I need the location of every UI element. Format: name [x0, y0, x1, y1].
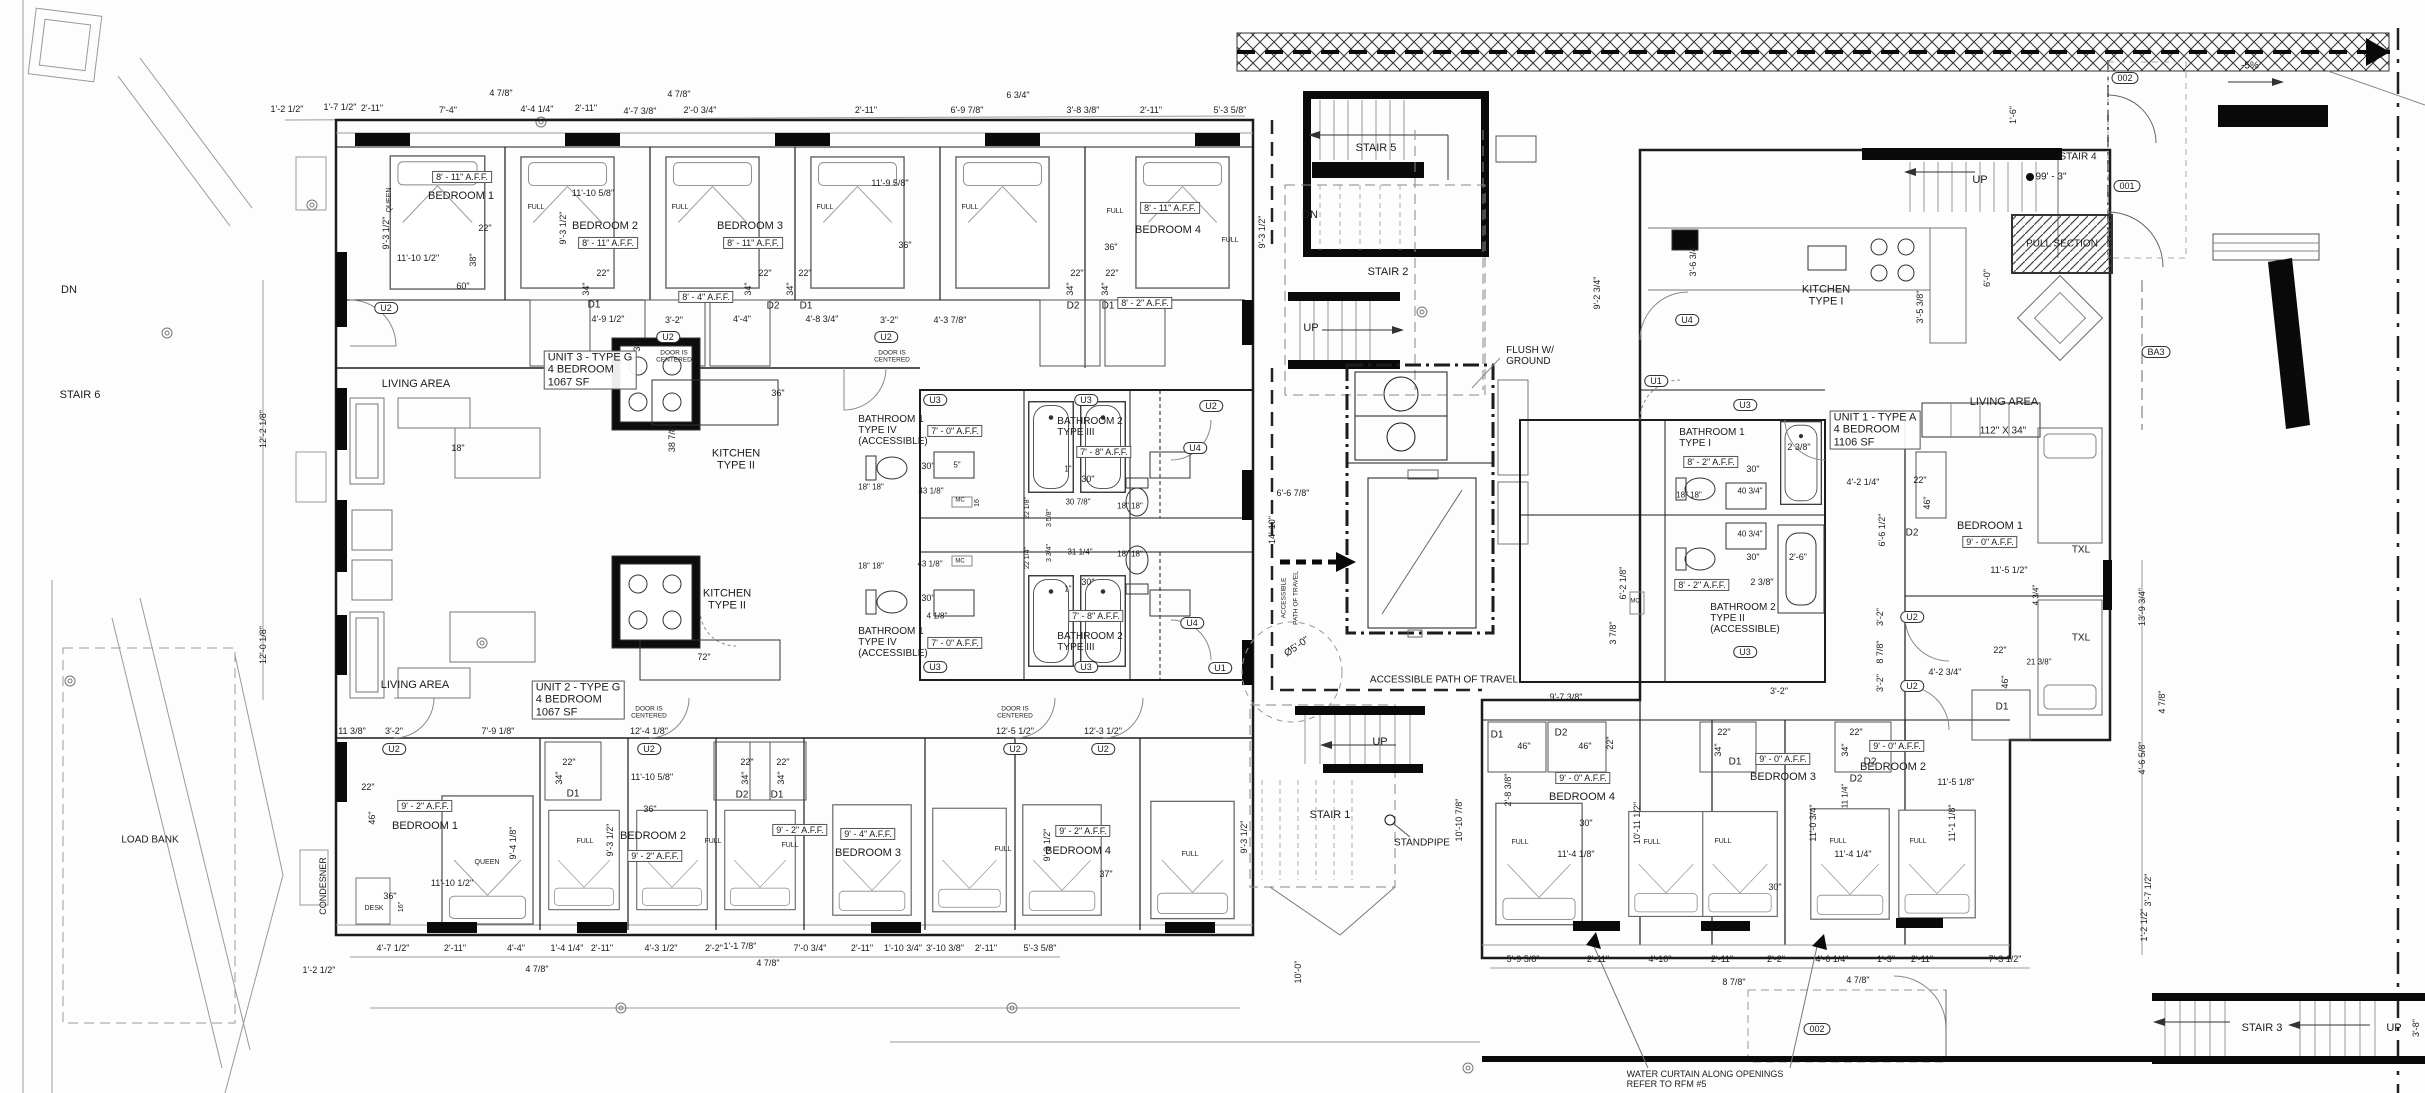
dim-label: 16" [398, 902, 406, 912]
bedroom-1-label: BEDROOM 1 [428, 190, 494, 202]
dim-label: 9'-2 3/4" [1592, 277, 1602, 310]
door-tag-u4: U4 [1183, 442, 1207, 454]
closet-tag: D1 [1102, 300, 1115, 311]
door-tag-u2: U2 [874, 331, 898, 343]
condenser-label: CONDESNER [318, 857, 328, 915]
aff-label: 9' - 0" A.F.F. [1555, 772, 1610, 784]
closet-tag: D2 [1906, 527, 1919, 538]
dim-label: 11'-1 1/8" [1947, 804, 1957, 841]
dim-label: 4'-6 1/4" [1816, 954, 1849, 964]
dim-label: 4 7/8" [2157, 690, 2167, 713]
dim-label: 22" [1913, 475, 1926, 485]
dim-label: 14'-10" [1267, 516, 1277, 544]
dim-label: 4'-8 3/4" [806, 314, 839, 324]
bed-size-label: FULL [576, 838, 593, 846]
stair4-up-label: UP [1972, 174, 1987, 186]
closet-tag: D2 [1067, 300, 1080, 311]
door-tag-u3: U3 [923, 661, 947, 673]
dim-label: 2'-11" [575, 103, 597, 113]
living-area-label: LIVING AREA [1970, 396, 2038, 408]
bedroom-2-label: BEDROOM 2 [620, 830, 686, 842]
fixture-tag: MC [1630, 599, 1639, 606]
door-note: DOOR IS CENTERED [874, 350, 910, 365]
dim-label: 3'-2" [385, 726, 403, 736]
bathroom-1-label: BATHROOM 1 TYPE IV (ACCESSIBLE) [858, 626, 927, 660]
floor-plan-canvas: DNSTAIR 612'-2 1/8"12'-0 1/8"LOAD BANKCO… [0, 0, 2425, 1093]
bed-size-label: FULL [781, 842, 798, 850]
dim-label: 11'-0 3/4" [1808, 804, 1818, 841]
dim-label: 18" 18" [858, 563, 884, 572]
bathroom-2-label: BATHROOM 2 TYPE III [1057, 416, 1122, 438]
bed-size-label: FULL [704, 838, 721, 846]
dim-label: 9'-3 1/2" [1239, 821, 1249, 854]
dim-label: 1'-3" [1877, 954, 1895, 964]
furniture-label: DESK [364, 905, 383, 913]
water-curtain-note: WATER CURTAIN ALONG OPENINGS REFER TO RF… [1627, 1069, 1784, 1089]
aff-label: 7' - 0" A.F.F. [927, 637, 982, 649]
dim-label: 1'-1 7/8" [724, 941, 757, 951]
dim-label: 30" [921, 461, 934, 471]
stair3-label: STAIR 3 [2242, 1022, 2283, 1034]
door-tag-u2: U2 [1900, 611, 1924, 623]
dim-label: 112" X 34" [1980, 425, 2026, 436]
door-tag-u2: U2 [656, 331, 680, 343]
dim-label: 22 1/8" [1024, 497, 1032, 519]
dim-label: 34" [581, 282, 591, 295]
dim-label: 30" [1081, 474, 1094, 484]
dim-label: 43 1/8" [918, 488, 943, 497]
dim-label: 4'-4 1/4" [521, 104, 554, 114]
dim-label: 4'-3 7/8" [934, 315, 967, 325]
dim-label: 22" [1993, 645, 2006, 655]
aff-label: 9' - 0" A.F.F. [1869, 740, 1924, 752]
aff-label: 9' - 0" A.F.F. [1755, 753, 1810, 765]
load-bank-label: LOAD BANK [121, 834, 178, 845]
dim-label: 22" [740, 757, 753, 767]
accessible-path-label: PATH OF TRAVEL [1292, 571, 1299, 625]
dim-label: 11 3/8" [338, 726, 366, 736]
dim-label: 4 7/8" [756, 958, 779, 968]
bed-size-label: FULL [671, 204, 688, 212]
bedroom-3-label: BEDROOM 3 [1750, 771, 1816, 783]
door-tag-u3: U3 [1074, 394, 1098, 406]
closet-tag: D1 [588, 299, 601, 310]
bedroom-4-label: BEDROOM 4 [1135, 224, 1201, 236]
dim-label: 2'-11" [851, 943, 873, 953]
dim-label: 3 3/4" [1046, 544, 1054, 562]
door-tag-u4: U4 [1675, 314, 1699, 326]
dim-label: 22" [798, 268, 811, 278]
dim-label: 2'-11" [1587, 954, 1609, 964]
dim-label: 9'-3 1/2" [605, 824, 615, 857]
dim-label: 38" [468, 253, 478, 266]
dim-label: 30" [921, 593, 934, 603]
dim-label: 2'-11" [1711, 954, 1733, 964]
bed-size-label: FULL [816, 204, 833, 212]
dim-label: 3 7/8" [1608, 621, 1618, 644]
aff-label: 8' - 11" A.F.F. [578, 237, 638, 249]
dim-label: 30" [1579, 818, 1592, 828]
dim-label: 1'-2 1/2" [2139, 909, 2149, 942]
unit-1-label: UNIT 1 - TYPE A 4 BEDROOM 1106 SF [1830, 411, 1921, 450]
dim-label: 4 7/8" [667, 89, 690, 99]
dim-label: 13'-9 3/4" [2137, 588, 2147, 626]
stair1-up-label: UP [1372, 736, 1387, 748]
kitchen-type2-label: KITCHEN TYPE II [712, 448, 760, 473]
door-note: DOOR IS CENTERED [631, 706, 667, 721]
dim-label: 12'-4 1/8" [630, 726, 668, 736]
dim-label: 2'-6" [1789, 552, 1807, 562]
dim-label: 11'-10 1/2" [431, 878, 473, 888]
aff-label: 8' - 2" A.F.F. [1683, 456, 1738, 468]
aff-label: 8' - 2" A.F.F. [1674, 579, 1729, 591]
door-tag-u4: U4 [1180, 617, 1204, 629]
dim-label: 10'-11 1/2" [1632, 802, 1642, 844]
dim-label: 34" [1100, 282, 1110, 295]
slope-label: -5% [2241, 60, 2259, 71]
dim-label: 2'-8 3/8" [1503, 774, 1513, 807]
stair1-label: STAIR 1 [1310, 809, 1351, 821]
dim-label: 2'-2" [705, 943, 723, 953]
dim-label: 4 7/8" [489, 88, 512, 98]
dim-label: 12'-0 1/8" [258, 626, 268, 664]
dim-label: 5" [953, 462, 960, 471]
fixture-tag: MC [955, 498, 964, 505]
dim-label: 4'-3 1/2" [645, 943, 678, 953]
bedroom-4-label: BEDROOM 4 [1549, 791, 1615, 803]
dim-label: 4'-9 1/2" [592, 314, 625, 324]
dim-label: 22" [1849, 727, 1862, 737]
closet-tag: D1 [1491, 729, 1504, 740]
door-tag-001: 001 [2113, 180, 2140, 192]
dim-label: 5'-9 5/8" [1507, 954, 1540, 964]
bathroom-2-label: BATHROOM 2 TYPE II (ACCESSIBLE) [1710, 602, 1779, 636]
dim-label: 34" [743, 282, 753, 295]
dim-label: 5'-3 5/8" [1024, 943, 1057, 953]
stair2-up-label: UP [1303, 322, 1318, 334]
aff-label: 9' - 4" A.F.F. [840, 828, 895, 840]
door-tag-u3: U3 [923, 394, 947, 406]
dim-label: 3 5/8" [1046, 509, 1054, 527]
door-tag-u2: U2 [1199, 400, 1223, 412]
dim-label: 2'-11" [855, 105, 877, 115]
dim-label: 3'-2" [1770, 686, 1788, 696]
unit-3-label: UNIT 3 - TYPE G 4 BEDROOM 1067 SF [544, 351, 637, 390]
door-note: DOOR IS CENTERED [656, 350, 692, 365]
aff-label: 9' - 2" A.F.F. [397, 800, 452, 812]
dim-label: 38 7/8" [667, 424, 677, 452]
door-note: DOOR IS CENTERED [997, 706, 1033, 721]
door-tag-u2: U2 [1900, 680, 1924, 692]
dim-label: 9'-3 1/2" [381, 217, 391, 250]
dim-label: 46" [1517, 741, 1530, 751]
aff-label: 7' - 8" A.F.F. [1076, 446, 1131, 458]
door-tag-002: 002 [1803, 1023, 1830, 1035]
dim-label: 6'-2 1/8" [1618, 567, 1628, 600]
living-area-label: LIVING AREA [381, 679, 449, 691]
dim-label: 1'-10 3/4" [884, 943, 922, 953]
dim-label: 11'-4 1/4" [1834, 849, 1871, 859]
dim-label: 30" [1081, 577, 1094, 587]
dim-label: 72" [697, 652, 710, 662]
dim-label: 1" [1064, 466, 1071, 475]
dim-label: 36" [1104, 242, 1117, 252]
dim-label: 2 3/8" [1750, 577, 1773, 587]
dim-label: 22" [596, 268, 609, 278]
dim-label: Ø5'-0" [1282, 634, 1311, 659]
dim-label: 40 3/4" [1737, 531, 1762, 540]
dim-label: 3'-5 3/8" [1915, 291, 1925, 324]
dim-label: 16 [974, 499, 982, 507]
dim-label: 36" [643, 804, 656, 814]
door-tag-u2: U2 [374, 302, 398, 314]
dim-label: 10'-10 7/8" [1454, 799, 1464, 842]
bed-size-label: FULL [1106, 208, 1123, 216]
dim-label: 46" [1922, 496, 1932, 509]
dim-label: 4'-2 3/4" [1929, 667, 1962, 677]
dim-label: 4'-4" [507, 943, 525, 953]
dim-label: 18" [451, 443, 464, 453]
dim-label: 11'-5 1/2" [1990, 565, 2027, 575]
dim-label: 21 3/8" [2026, 659, 2051, 668]
dim-label: 3'-7 1/2" [2143, 874, 2153, 907]
dim-label: 22" [776, 757, 789, 767]
dim-label: 22" [1070, 268, 1083, 278]
dim-label: 22 1/4" [1024, 547, 1032, 569]
bed-size-label: FULL [1909, 838, 1926, 846]
dim-label: 8 7/8" [1722, 977, 1745, 987]
dim-label: 30" [1768, 882, 1781, 892]
bed-size-label: FULL [1511, 839, 1528, 847]
door-tag-u3: U3 [1733, 646, 1757, 658]
dim-label: 4 7/8" [1846, 975, 1869, 985]
dim-label: 1'-7 1/2" [324, 102, 357, 112]
closet-tag: D1 [1996, 701, 2009, 712]
bathroom-2-label: BATHROOM 2 TYPE III [1057, 631, 1122, 653]
stair6-label: STAIR 6 [60, 389, 101, 401]
dim-label: 11'-10 5/8" [631, 772, 673, 782]
dim-label: 7'-4" [439, 105, 457, 115]
dim-label: 1'-6" [2008, 106, 2018, 124]
dim-label: 34" [1840, 743, 1850, 756]
dim-label: 3'-2" [880, 315, 898, 325]
dim-label: 4 3/4" [2033, 585, 2042, 606]
dim-label: 60" [456, 281, 469, 291]
stair2-label: STAIR 2 [1368, 266, 1409, 278]
aff-label: 7' - 8" A.F.F. [1068, 610, 1123, 622]
bedroom-2-label: BEDROOM 2 [1860, 761, 1926, 773]
bathroom-1-label: BATHROOM 1 TYPE IV (ACCESSIBLE) [858, 414, 927, 448]
dim-label: 2'-11" [444, 943, 466, 953]
bedroom-2-label: BEDROOM 2 [572, 220, 638, 232]
bedroom-3-label: BEDROOM 3 [835, 847, 901, 859]
dim-label: 12'-3 1/2" [1084, 726, 1122, 736]
dim-label: 4 7/8" [525, 964, 548, 974]
bedroom-1-label: BEDROOM 1 [392, 820, 458, 832]
dim-label: 1'-2 1/2" [303, 965, 336, 975]
dim-label: 11'-10 1/2" [397, 253, 439, 263]
dim-label: 2'-11" [1140, 105, 1162, 115]
closet-tag: D2 [767, 300, 780, 311]
dim-label: 18" 18" [858, 484, 884, 493]
stair4-label: STAIR 4 [2059, 151, 2096, 162]
dim-label: 6 3/4" [1006, 90, 1029, 100]
bed-size-label: QUEEN [386, 188, 394, 213]
dim-label: 34" [1713, 743, 1723, 756]
dim-label: 4'-7 1/2" [377, 943, 410, 953]
door-tag-002: 002 [2111, 72, 2138, 84]
door-tag-u2: U2 [382, 743, 406, 755]
closet-tag: D1 [800, 300, 813, 311]
bed-size-label: FULL [1221, 237, 1238, 245]
dim-label: 37" [1099, 869, 1112, 879]
closet-tag: D1 [1729, 756, 1742, 767]
aff-label: 9' - 2" A.F.F. [627, 850, 682, 862]
dim-label: 34" [740, 771, 750, 784]
aff-label: 8' - 11" A.F.F. [723, 237, 783, 249]
fixture-tag: MC [955, 559, 964, 566]
bed-size-label: QUEEN [475, 859, 500, 867]
dim-label: 1'-4 1/4" [551, 943, 584, 953]
aff-label: 9' - 2" A.F.F. [1055, 825, 1110, 837]
dim-label: 3'-2" [665, 315, 683, 325]
dim-label: 31 1/4" [1067, 549, 1092, 558]
dim-label: 22" [361, 782, 374, 792]
unit-2-label: UNIT 2 - TYPE G 4 BEDROOM 1067 SF [532, 681, 625, 720]
bathroom-1-label: BATHROOM 1 TYPE I [1679, 427, 1744, 449]
stair3-up-label: UP [2386, 1022, 2401, 1034]
aff-label: 8' - 11" A.F.F. [1140, 202, 1200, 214]
level-label: 99' - 3" [2035, 171, 2066, 182]
bed-size-label: FULL [1829, 838, 1846, 846]
stair5-label: STAIR 5 [1356, 142, 1397, 154]
dim-label: 34" [776, 771, 786, 784]
dim-label: 11'-9 5/8" [871, 178, 908, 188]
dim-label: 22" [1605, 736, 1615, 749]
dim-label: 9'-3 1/2" [558, 212, 568, 245]
dim-label: 7'-9 1/8" [482, 726, 515, 736]
door-tag-u1: U1 [1644, 375, 1668, 387]
aff-label: 8' - 4" A.F.F. [678, 291, 733, 303]
dim-label: 3'-2" [1875, 608, 1885, 626]
dim-label: 3'-8" [2411, 1019, 2421, 1037]
door-tag-u2: U2 [1091, 743, 1115, 755]
dim-label: 34" [554, 771, 564, 784]
aff-label: 9' - 0" A.F.F. [1962, 536, 2017, 548]
dim-label: 11 1/4" [1842, 784, 1851, 809]
bed-size-label: FULL [1643, 839, 1660, 847]
dim-label: 11'-5 1/8" [1937, 777, 1974, 787]
bed-size-label: FULL [1181, 851, 1198, 859]
dim-label: 9'-3 1/2" [1257, 216, 1267, 249]
bed-size-label: TXL [2072, 544, 2090, 555]
standpipe-label: STANDPIPE [1394, 837, 1450, 848]
dim-label: 9'-4 1/8" [508, 827, 518, 860]
dim-label: 46" [1578, 741, 1591, 751]
dim-label: 22" [758, 268, 771, 278]
dim-label: 2 3/8" [1787, 442, 1810, 452]
dim-label: 2'-0 3/4" [684, 105, 717, 115]
aff-label: 8' - 2" A.F.F. [1117, 297, 1172, 309]
dim-label: 12'-2 1/8" [258, 410, 268, 448]
dim-label: 36" [771, 388, 784, 398]
dim-label: 46" [367, 811, 377, 824]
dim-label: 6'-9 7/8" [951, 105, 984, 115]
dim-label: 30 7/8" [1065, 499, 1090, 508]
dim-label: 7'-0 3/4" [794, 943, 827, 953]
dim-label: 18" 18" [1117, 551, 1143, 560]
closet-tag: D2 [736, 789, 749, 800]
dim-label: 5'-3 5/8" [1214, 105, 1247, 115]
dim-label: 2'-2" [1767, 954, 1785, 964]
dim-label: 46" [2000, 675, 2010, 688]
dim-label: 4'-7 3/8" [624, 106, 657, 116]
dim-label: 2'-11" [1911, 954, 1933, 964]
dim-label: 9'-7 3/8" [1550, 692, 1583, 702]
dim-label: 4'-2 1/4" [1847, 477, 1880, 487]
pull-section-label: PULL SECTION [2026, 238, 2098, 249]
dim-label: 8 7/8" [1875, 640, 1885, 663]
dim-label: 3'-6 3/4" [1688, 244, 1698, 277]
aff-label: 7' - 0" A.F.F. [927, 425, 982, 437]
dim-label: 6'-6 1/2" [1877, 514, 1887, 547]
closet-tag: D1 [567, 788, 580, 799]
dim-label: 2'-11" [361, 103, 383, 113]
door-tag-u3: U3 [1074, 661, 1098, 673]
dim-label: 10'-0" [1293, 961, 1303, 984]
living-area-label: LIVING AREA [382, 378, 450, 390]
dim-label: 2'-11" [975, 943, 997, 953]
dim-label: 36" [898, 240, 911, 250]
door-tag-u3: U3 [1733, 399, 1757, 411]
dim-label: 3'-8 3/8" [1067, 105, 1100, 115]
bed-size-label: TXL [2072, 632, 2090, 643]
bed-size-label: FULL [961, 204, 978, 212]
dim-label: 1" [1064, 586, 1071, 595]
bedroom-1-label: BEDROOM 1 [1957, 520, 2023, 532]
dim-label: 4'-10" [1649, 954, 1672, 964]
accessible-path-label: ACCESSIBLE [1280, 578, 1287, 619]
dim-label: 3'-10 3/8" [926, 943, 964, 953]
bed-size-label: FULL [527, 204, 544, 212]
bedroom-4-label: BEDROOM 4 [1045, 845, 1111, 857]
closet-tag: D1 [771, 789, 784, 800]
door-tag-u1: U1 [1208, 662, 1232, 674]
dim-label: 22" [1105, 268, 1118, 278]
dim-label: 6'-0" [1982, 269, 1992, 287]
dim-label: 3'-2" [1875, 674, 1885, 692]
dim-label: 43 1/8" [917, 561, 942, 570]
flush-note: FLUSH W/ GROUND [1506, 345, 1554, 367]
dim-label: 34" [785, 282, 795, 295]
stair6-dn-label: DN [61, 284, 77, 296]
dim-label: 6'-6 7/8" [1277, 488, 1310, 498]
accessible-path-label: ACCESSIBLE PATH OF TRAVEL [1370, 674, 1518, 685]
dim-label: 22" [562, 757, 575, 767]
stair5-dn-label: DN [1302, 209, 1318, 221]
dim-label: 30" [1746, 552, 1759, 562]
dim-label: 1'-2 1/2" [271, 104, 304, 114]
aff-label: 9' - 2" A.F.F. [772, 824, 827, 836]
dim-label: 2'-11" [591, 943, 613, 953]
closet-tag: D2 [1555, 727, 1568, 738]
dim-label: 7'-3 1/2" [1989, 954, 2022, 964]
dim-label: 36" [383, 891, 396, 901]
bed-size-label: FULL [1714, 838, 1731, 846]
kitchen-type2-label: KITCHEN TYPE II [703, 588, 751, 613]
dim-label: 4'-6 5/8" [2137, 742, 2147, 775]
dim-label: 34" [1065, 282, 1075, 295]
